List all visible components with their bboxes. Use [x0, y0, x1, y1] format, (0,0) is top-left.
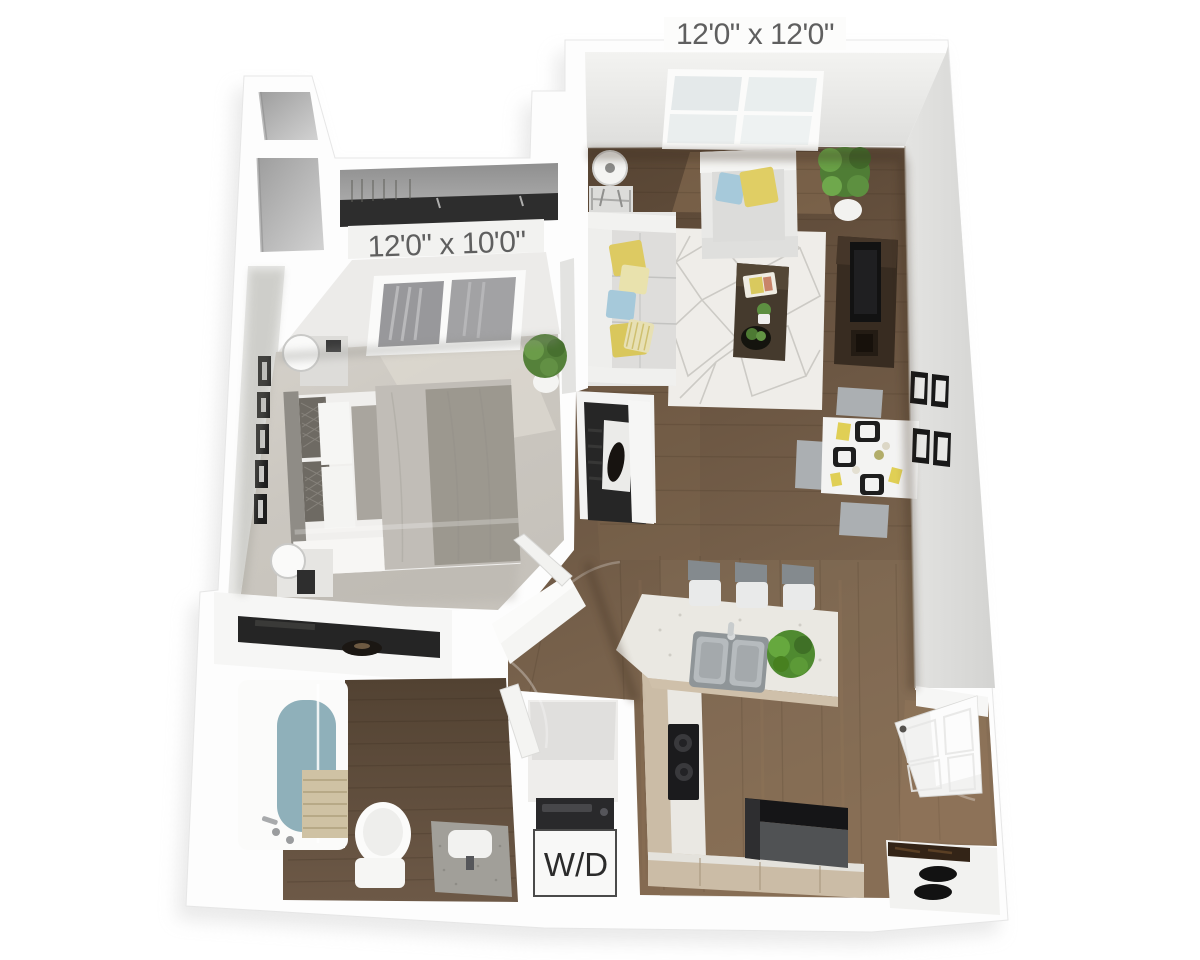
svg-text:W/D: W/D — [544, 846, 608, 883]
svg-text:12'0" x 12'0": 12'0" x 12'0" — [676, 18, 834, 51]
svg-text:12'0" x 10'0": 12'0" x 10'0" — [367, 225, 526, 263]
